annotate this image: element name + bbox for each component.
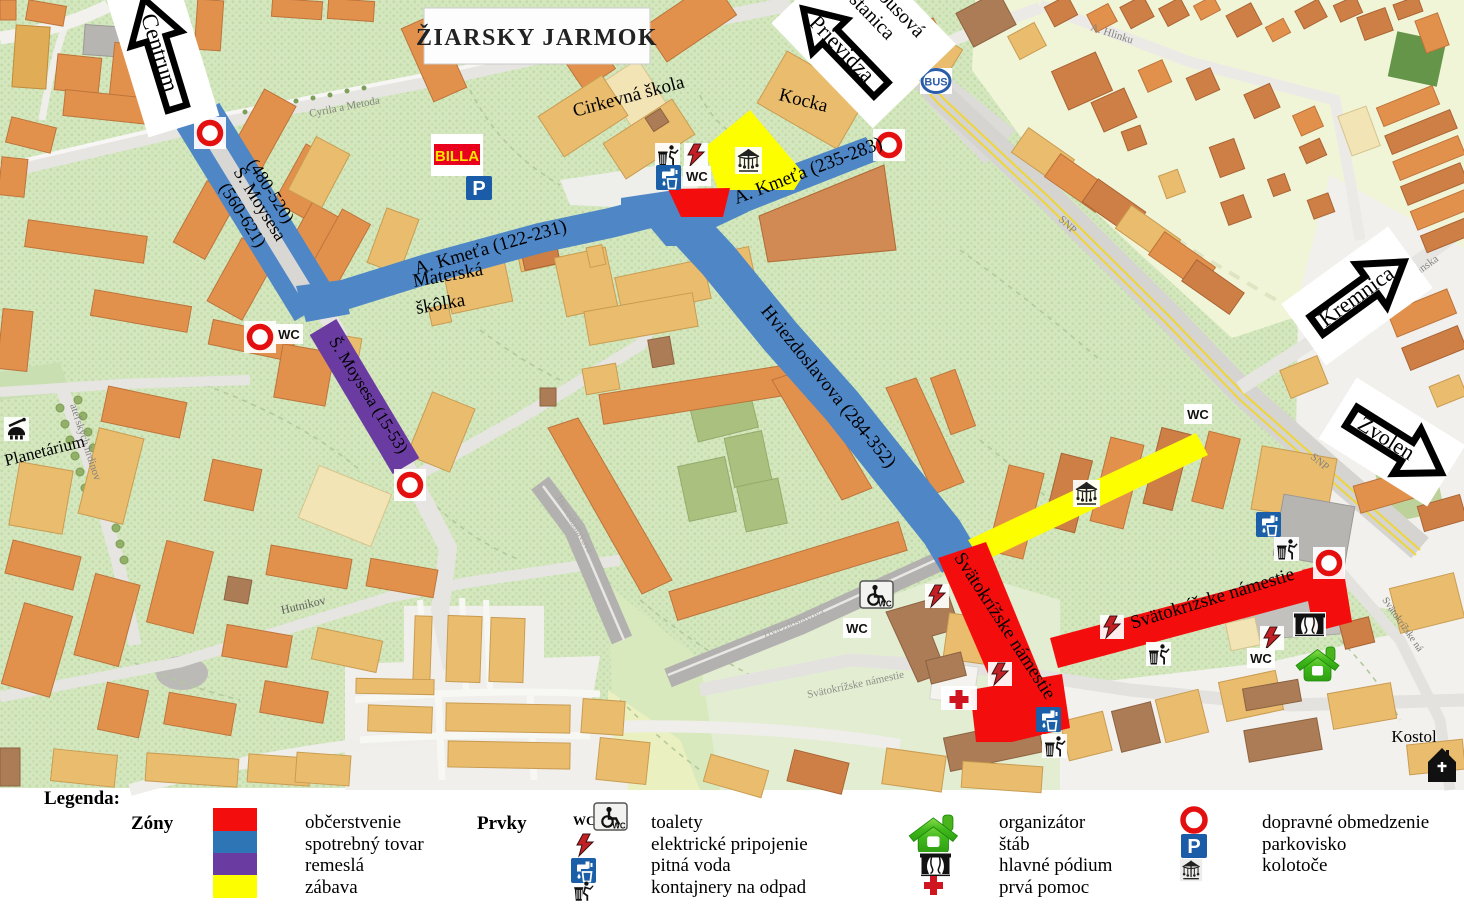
svg-text:občerstvenie: občerstvenie (305, 812, 401, 833)
svg-text:prvá pomoc: prvá pomoc (999, 877, 1089, 898)
svg-text:spotrebný tovar: spotrebný tovar (305, 834, 424, 855)
svg-text:hlavné pódium: hlavné pódium (999, 855, 1113, 876)
svg-text:WC: WC (573, 813, 595, 828)
svg-text:remeslá: remeslá (305, 855, 365, 876)
svg-text:elektrické pripojenie: elektrické pripojenie (651, 834, 808, 855)
svg-text:štáb: štáb (999, 834, 1030, 855)
svg-text:Legenda:: Legenda: (44, 788, 120, 809)
svg-text:pitná voda: pitná voda (651, 855, 731, 876)
svg-text:kolotoče: kolotoče (1262, 855, 1327, 876)
svg-text:Zóny: Zóny (131, 813, 174, 834)
svg-text:zábava: zábava (305, 877, 358, 898)
svg-text:organizátor: organizátor (999, 812, 1086, 833)
svg-text:Prvky: Prvky (477, 813, 527, 834)
svg-text:ŽIARSKY JARMOK: ŽIARSKY JARMOK (416, 24, 658, 51)
svg-text:parkovisko: parkovisko (1262, 834, 1346, 855)
svg-text:dopravné obmedzenie: dopravné obmedzenie (1262, 812, 1429, 833)
svg-text:toalety: toalety (651, 812, 703, 833)
svg-text:BILLA: BILLA (435, 148, 479, 165)
svg-text:Kostol: Kostol (1391, 727, 1437, 746)
svg-text:kontajnery na odpad: kontajnery na odpad (651, 877, 807, 898)
